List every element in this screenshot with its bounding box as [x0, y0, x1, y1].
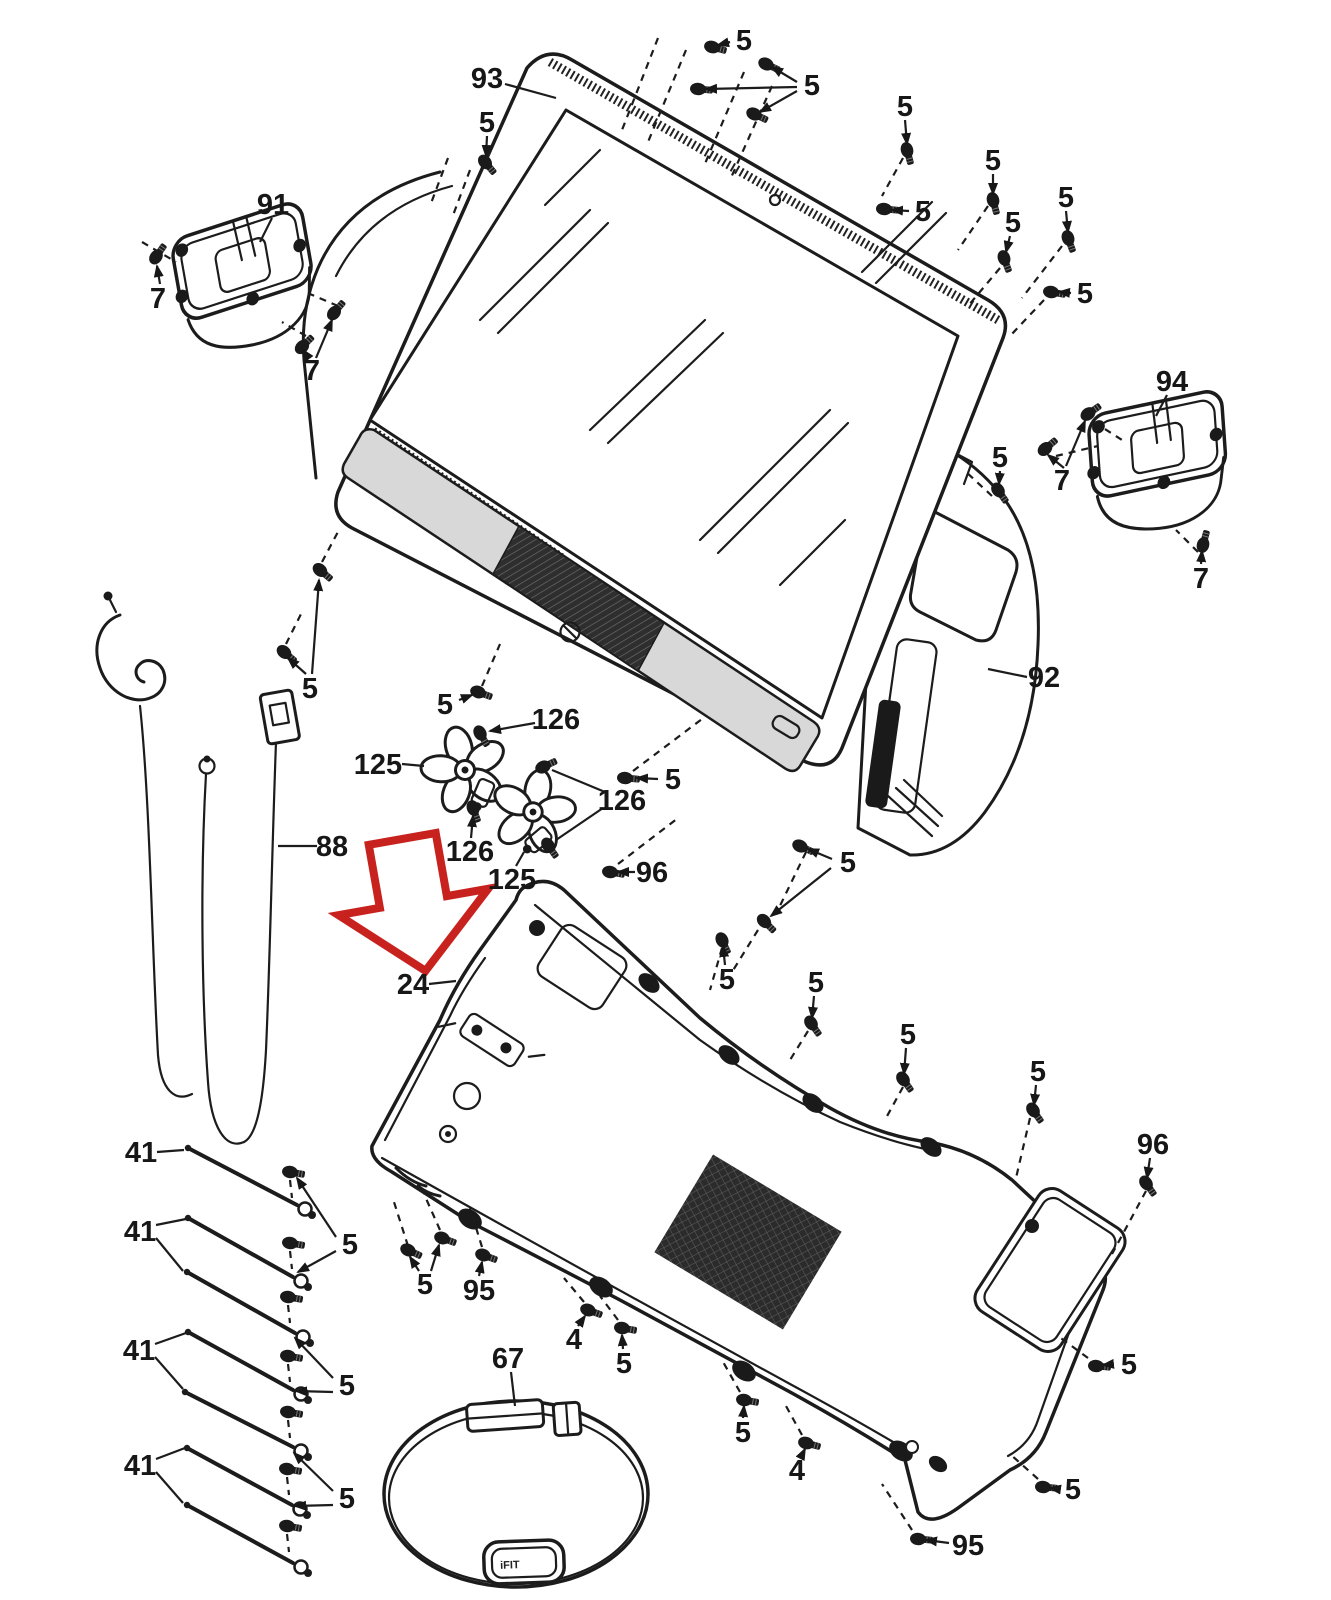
screw-icon: [797, 1435, 822, 1453]
leader-line: [486, 136, 487, 156]
leader-line: [1050, 1488, 1057, 1489]
screw-icon: [310, 560, 336, 584]
part-label-5-7: 5: [1005, 207, 1021, 239]
part-label-4-48: 4: [789, 1455, 805, 1487]
screw-icon: [274, 642, 300, 666]
dashed-assembly-line: [290, 1180, 292, 1198]
part-label-5-9: 5: [1077, 278, 1093, 310]
screw-icon: [279, 1290, 304, 1306]
part-label-5-42: 5: [417, 1269, 433, 1301]
leader-line: [812, 996, 814, 1018]
leader-line: [772, 67, 797, 82]
part-label-5-10: 5: [992, 442, 1008, 474]
leader-line: [431, 1245, 439, 1271]
leader-line: [1066, 211, 1068, 232]
leader-line: [156, 1472, 183, 1503]
basket-94: [1079, 384, 1234, 548]
dashed-assembly-line: [882, 1484, 912, 1530]
dashed-assembly-line: [288, 1364, 290, 1382]
wire-tie-rod: [182, 1389, 312, 1461]
part-label-5-32: 5: [900, 1019, 916, 1051]
dashed-assembly-line: [287, 1534, 289, 1552]
screw-icon: [281, 1165, 306, 1181]
dashed-assembly-line: [786, 1406, 802, 1435]
leader-line: [490, 723, 535, 731]
part-label-95-43: 95: [463, 1275, 495, 1307]
part-label-125-25: 125: [488, 864, 536, 896]
part-label-67-46: 67: [492, 1343, 524, 1375]
leader-line: [905, 120, 907, 144]
dashed-assembly-line: [633, 716, 706, 771]
part-label-5-47: 5: [735, 1417, 751, 1449]
screw-icon: [278, 1462, 303, 1478]
leader-line: [156, 1219, 186, 1225]
part-label-41-37: 41: [123, 1335, 155, 1367]
part-label-94-14: 94: [1156, 366, 1188, 398]
leader-line: [295, 1505, 333, 1506]
leader-line: [157, 266, 160, 284]
leader-line: [1103, 1364, 1113, 1365]
part-label-5-18: 5: [302, 673, 318, 705]
dashed-assembly-line: [288, 1305, 290, 1323]
part-label-5-39: 5: [342, 1229, 358, 1261]
wire-tie-rod: [185, 1329, 312, 1404]
wire-tie-rod: [184, 1502, 312, 1577]
leader-line: [771, 868, 831, 916]
screw-icon: [909, 1532, 933, 1546]
part-label-5-8: 5: [1058, 182, 1074, 214]
part-label-93-0: 93: [471, 63, 503, 95]
leader-line: [622, 1335, 623, 1349]
belt-module: iFIT: [483, 1540, 564, 1585]
dashed-assembly-line: [564, 1278, 584, 1302]
leader-line: [288, 658, 306, 674]
exploded-parts-diagram: iFIT 93555555555591779477925512512651261…: [0, 0, 1331, 1600]
part-label-5-1: 5: [479, 107, 495, 139]
part-label-88-27: 88: [316, 831, 348, 863]
wire-tie-rod: [184, 1445, 311, 1519]
part-label-5-41: 5: [339, 1483, 355, 1515]
dashed-assembly-line: [1016, 1118, 1030, 1178]
part-label-5-29: 5: [840, 847, 856, 879]
part-label-4-44: 4: [566, 1324, 582, 1356]
dashed-assembly-line: [732, 930, 758, 972]
diagram-canvas: iFIT 93555555555591779477925512512651261…: [0, 0, 1331, 1600]
part-label-41-35: 41: [125, 1137, 157, 1169]
dashed-assembly-line: [482, 644, 500, 686]
part-label-5-33: 5: [1030, 1056, 1046, 1088]
dashed-assembly-line: [776, 852, 806, 914]
part-label-126-23: 126: [598, 785, 646, 817]
part-label-95-49: 95: [952, 1530, 984, 1562]
dashed-assembly-line: [958, 206, 988, 250]
part-label-5-22: 5: [665, 764, 681, 796]
screw-icon: [613, 1321, 638, 1337]
leader-line: [1066, 421, 1085, 466]
leader-line: [316, 320, 332, 358]
screw-icon: [324, 298, 348, 324]
part-label-7-15: 7: [1054, 465, 1070, 497]
leader-line: [706, 87, 797, 89]
part-label-5-50: 5: [1065, 1474, 1081, 1506]
leader-line: [471, 816, 473, 838]
screw-icon: [616, 771, 640, 785]
wire-tie-rod: [185, 1145, 316, 1219]
part-label-96-34: 96: [1137, 1129, 1169, 1161]
part-label-91-11: 91: [257, 189, 289, 221]
dashed-assembly-line: [1176, 530, 1198, 552]
dashed-assembly-line: [310, 294, 338, 306]
leader-line: [1059, 292, 1071, 293]
screw-icon: [985, 191, 1003, 216]
screw-icon: [735, 1393, 760, 1409]
screw-icon: [756, 55, 782, 76]
leader-line: [429, 981, 456, 984]
dashed-assembly-line: [288, 1420, 290, 1438]
safety-clip: [97, 615, 165, 700]
screw-icon: [703, 39, 728, 57]
chest-belt-67: iFIT: [384, 1399, 648, 1587]
screw-icon: [790, 837, 816, 858]
leader-line: [157, 1150, 184, 1152]
belt-buckle: [466, 1399, 544, 1431]
part-label-41-36: 41: [124, 1216, 156, 1248]
leader-line: [312, 580, 319, 674]
part-label-5-19: 5: [437, 689, 453, 721]
dashed-assembly-line: [394, 1202, 408, 1246]
part-label-126-21: 126: [532, 704, 580, 736]
screw-icon: [278, 1519, 303, 1535]
dashed-assembly-line: [1010, 300, 1044, 336]
leader-line: [892, 210, 909, 211]
dashed-assembly-line: [430, 158, 448, 206]
dashed-assembly-line: [790, 1031, 808, 1060]
cable-88: [97, 592, 300, 1144]
screw-icon: [473, 1246, 499, 1266]
screw-icon: [279, 1349, 304, 1365]
part-label-41-38: 41: [124, 1450, 156, 1482]
dashed-assembly-line: [600, 1296, 618, 1320]
part-label-5-40: 5: [339, 1370, 355, 1402]
leader-line: [1034, 1085, 1036, 1105]
part-label-5-3: 5: [804, 70, 820, 102]
belt-module-label: iFIT: [500, 1559, 520, 1572]
screw-icon: [281, 1236, 306, 1252]
dashed-assembly-line: [286, 612, 302, 644]
dashed-assembly-line: [287, 1477, 289, 1495]
leader-line: [904, 1048, 906, 1074]
part-label-5-30: 5: [719, 964, 735, 996]
part-label-96-26: 96: [636, 857, 668, 889]
part-label-125-20: 125: [354, 749, 402, 781]
leader-line: [1147, 1158, 1150, 1178]
cable-connector: [260, 690, 300, 745]
part-label-5-45: 5: [616, 1348, 632, 1380]
part-label-5-51: 5: [1121, 1349, 1137, 1381]
screw-icon: [1059, 228, 1079, 254]
screw-icon: [146, 241, 169, 267]
wire-ties-41: [182, 1145, 316, 1577]
leader-line: [479, 1262, 482, 1276]
screw-icon: [432, 1229, 458, 1249]
part-label-7-13: 7: [304, 355, 320, 387]
leader-line: [156, 1448, 185, 1459]
leader-line: [718, 42, 730, 45]
shell-screw-hole: [529, 920, 545, 936]
leader-line: [298, 1251, 336, 1272]
dashed-assembly-line: [886, 1087, 903, 1118]
dashed-assembly-line: [882, 158, 903, 196]
dashed-assembly-line: [290, 1251, 292, 1269]
part-label-7-16: 7: [1193, 563, 1209, 595]
part-label-7-12: 7: [150, 283, 166, 315]
dashed-assembly-line: [322, 528, 340, 562]
part-label-5-6: 5: [985, 145, 1001, 177]
screw-icon: [1034, 1480, 1058, 1494]
part-label-24-28: 24: [397, 969, 429, 1001]
part-label-5-4: 5: [897, 91, 913, 123]
part-label-5-5: 5: [915, 196, 931, 228]
screw-icon: [279, 1405, 304, 1421]
leader-line: [156, 1238, 183, 1271]
leader-line: [637, 778, 658, 779]
screw-icon: [1087, 1359, 1111, 1373]
leader-line: [155, 1333, 186, 1344]
part-label-5-31: 5: [808, 967, 824, 999]
leader-line: [155, 1357, 183, 1389]
leader-line: [459, 695, 472, 700]
leader-line: [296, 1391, 333, 1392]
part-label-5-2: 5: [736, 25, 752, 57]
screw-icon: [468, 683, 494, 703]
part-label-92-17: 92: [1028, 662, 1060, 694]
